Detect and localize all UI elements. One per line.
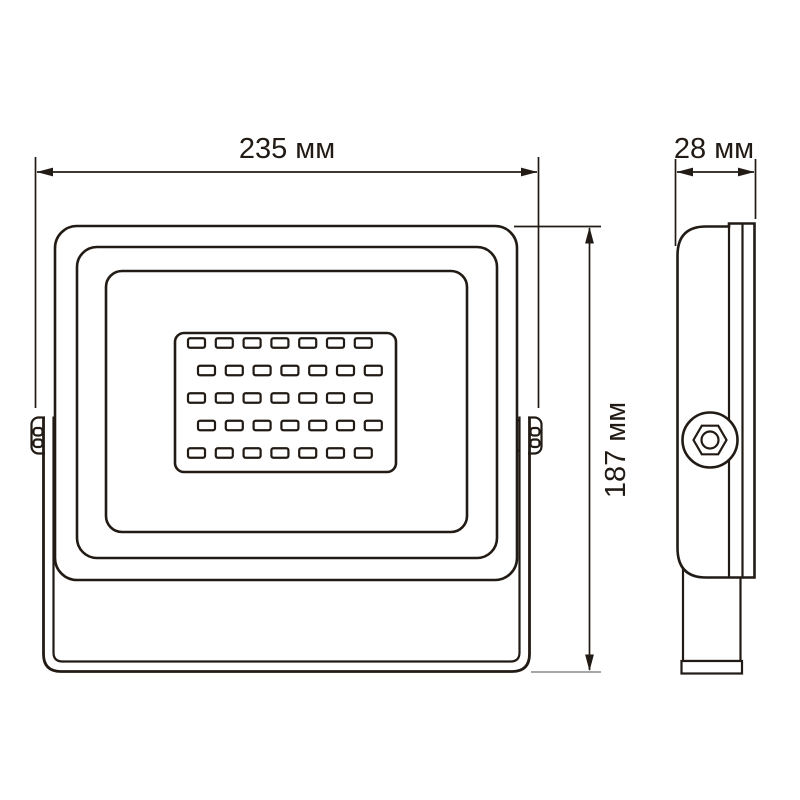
side-view: [678, 224, 755, 674]
bolt-washer-circle: [683, 413, 738, 468]
pivot-bolt: [683, 413, 738, 468]
arrowhead-left-icon: [37, 168, 54, 177]
front-view: [32, 226, 542, 672]
dimension-width-label: 235 мм: [239, 133, 335, 165]
arrowhead-right-icon: [521, 168, 538, 177]
dimension-depth-label: 28 мм: [674, 133, 754, 165]
arrowhead-right-icon: [738, 168, 755, 177]
bracket-arm-cover: [521, 416, 529, 460]
bracket-arm-cover: [45, 416, 53, 460]
floodlight-dimension-drawing: 235 мм 28 мм 187 мм: [0, 0, 800, 800]
bracket-side-foot: [682, 661, 743, 674]
arrowhead-left-icon: [677, 168, 694, 177]
arrowhead-up-icon: [585, 227, 594, 244]
dimension-height-label: 187 мм: [600, 402, 632, 498]
arrowhead-down-icon: [585, 655, 594, 672]
